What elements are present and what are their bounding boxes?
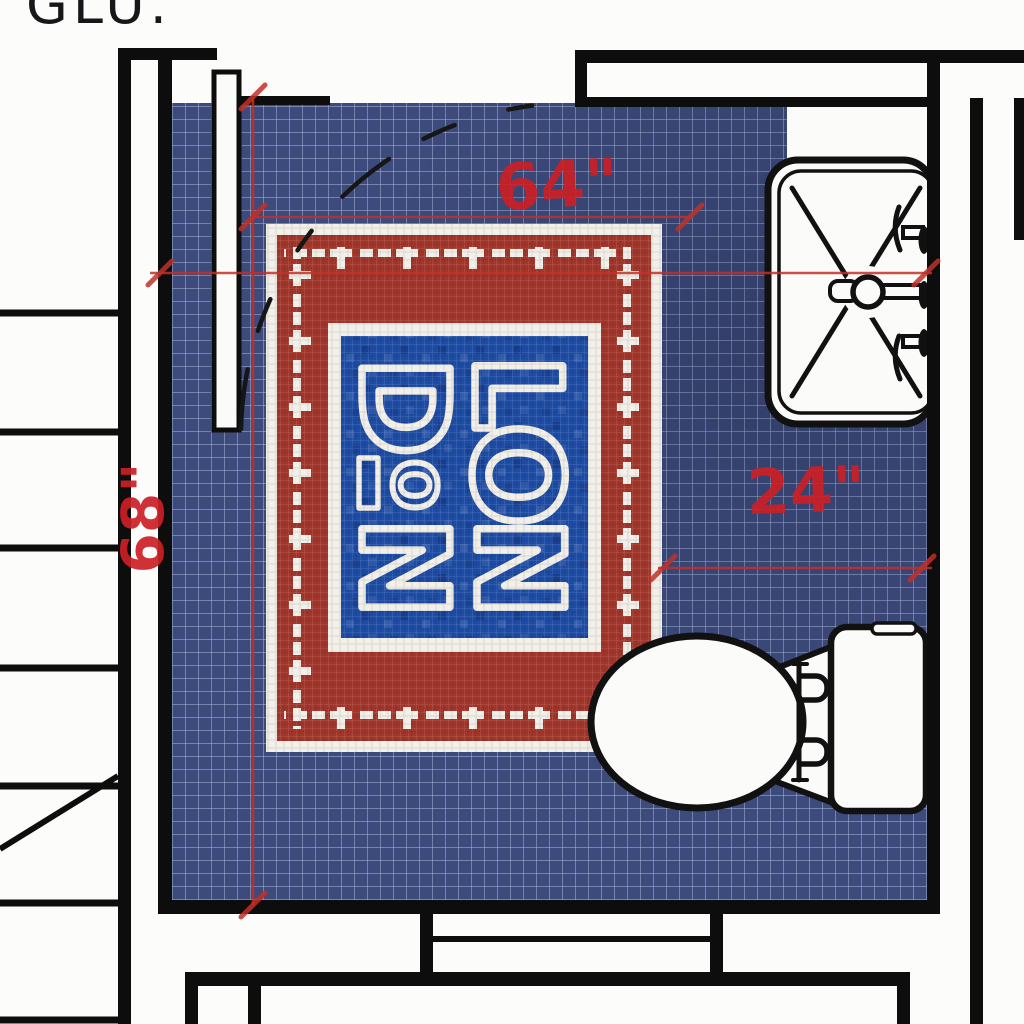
annotation-layer: 64" 24" 68" bbox=[0, 0, 1024, 1024]
dimension-labels: 64" 24" 68" bbox=[109, 146, 866, 574]
dimension-label-right: 24" bbox=[745, 452, 866, 529]
bathroom-floor-plan: GLU. bbox=[0, 0, 1024, 1024]
dimension-label-top: 64" bbox=[494, 146, 620, 226]
dimension-label-left: 68" bbox=[109, 463, 177, 574]
